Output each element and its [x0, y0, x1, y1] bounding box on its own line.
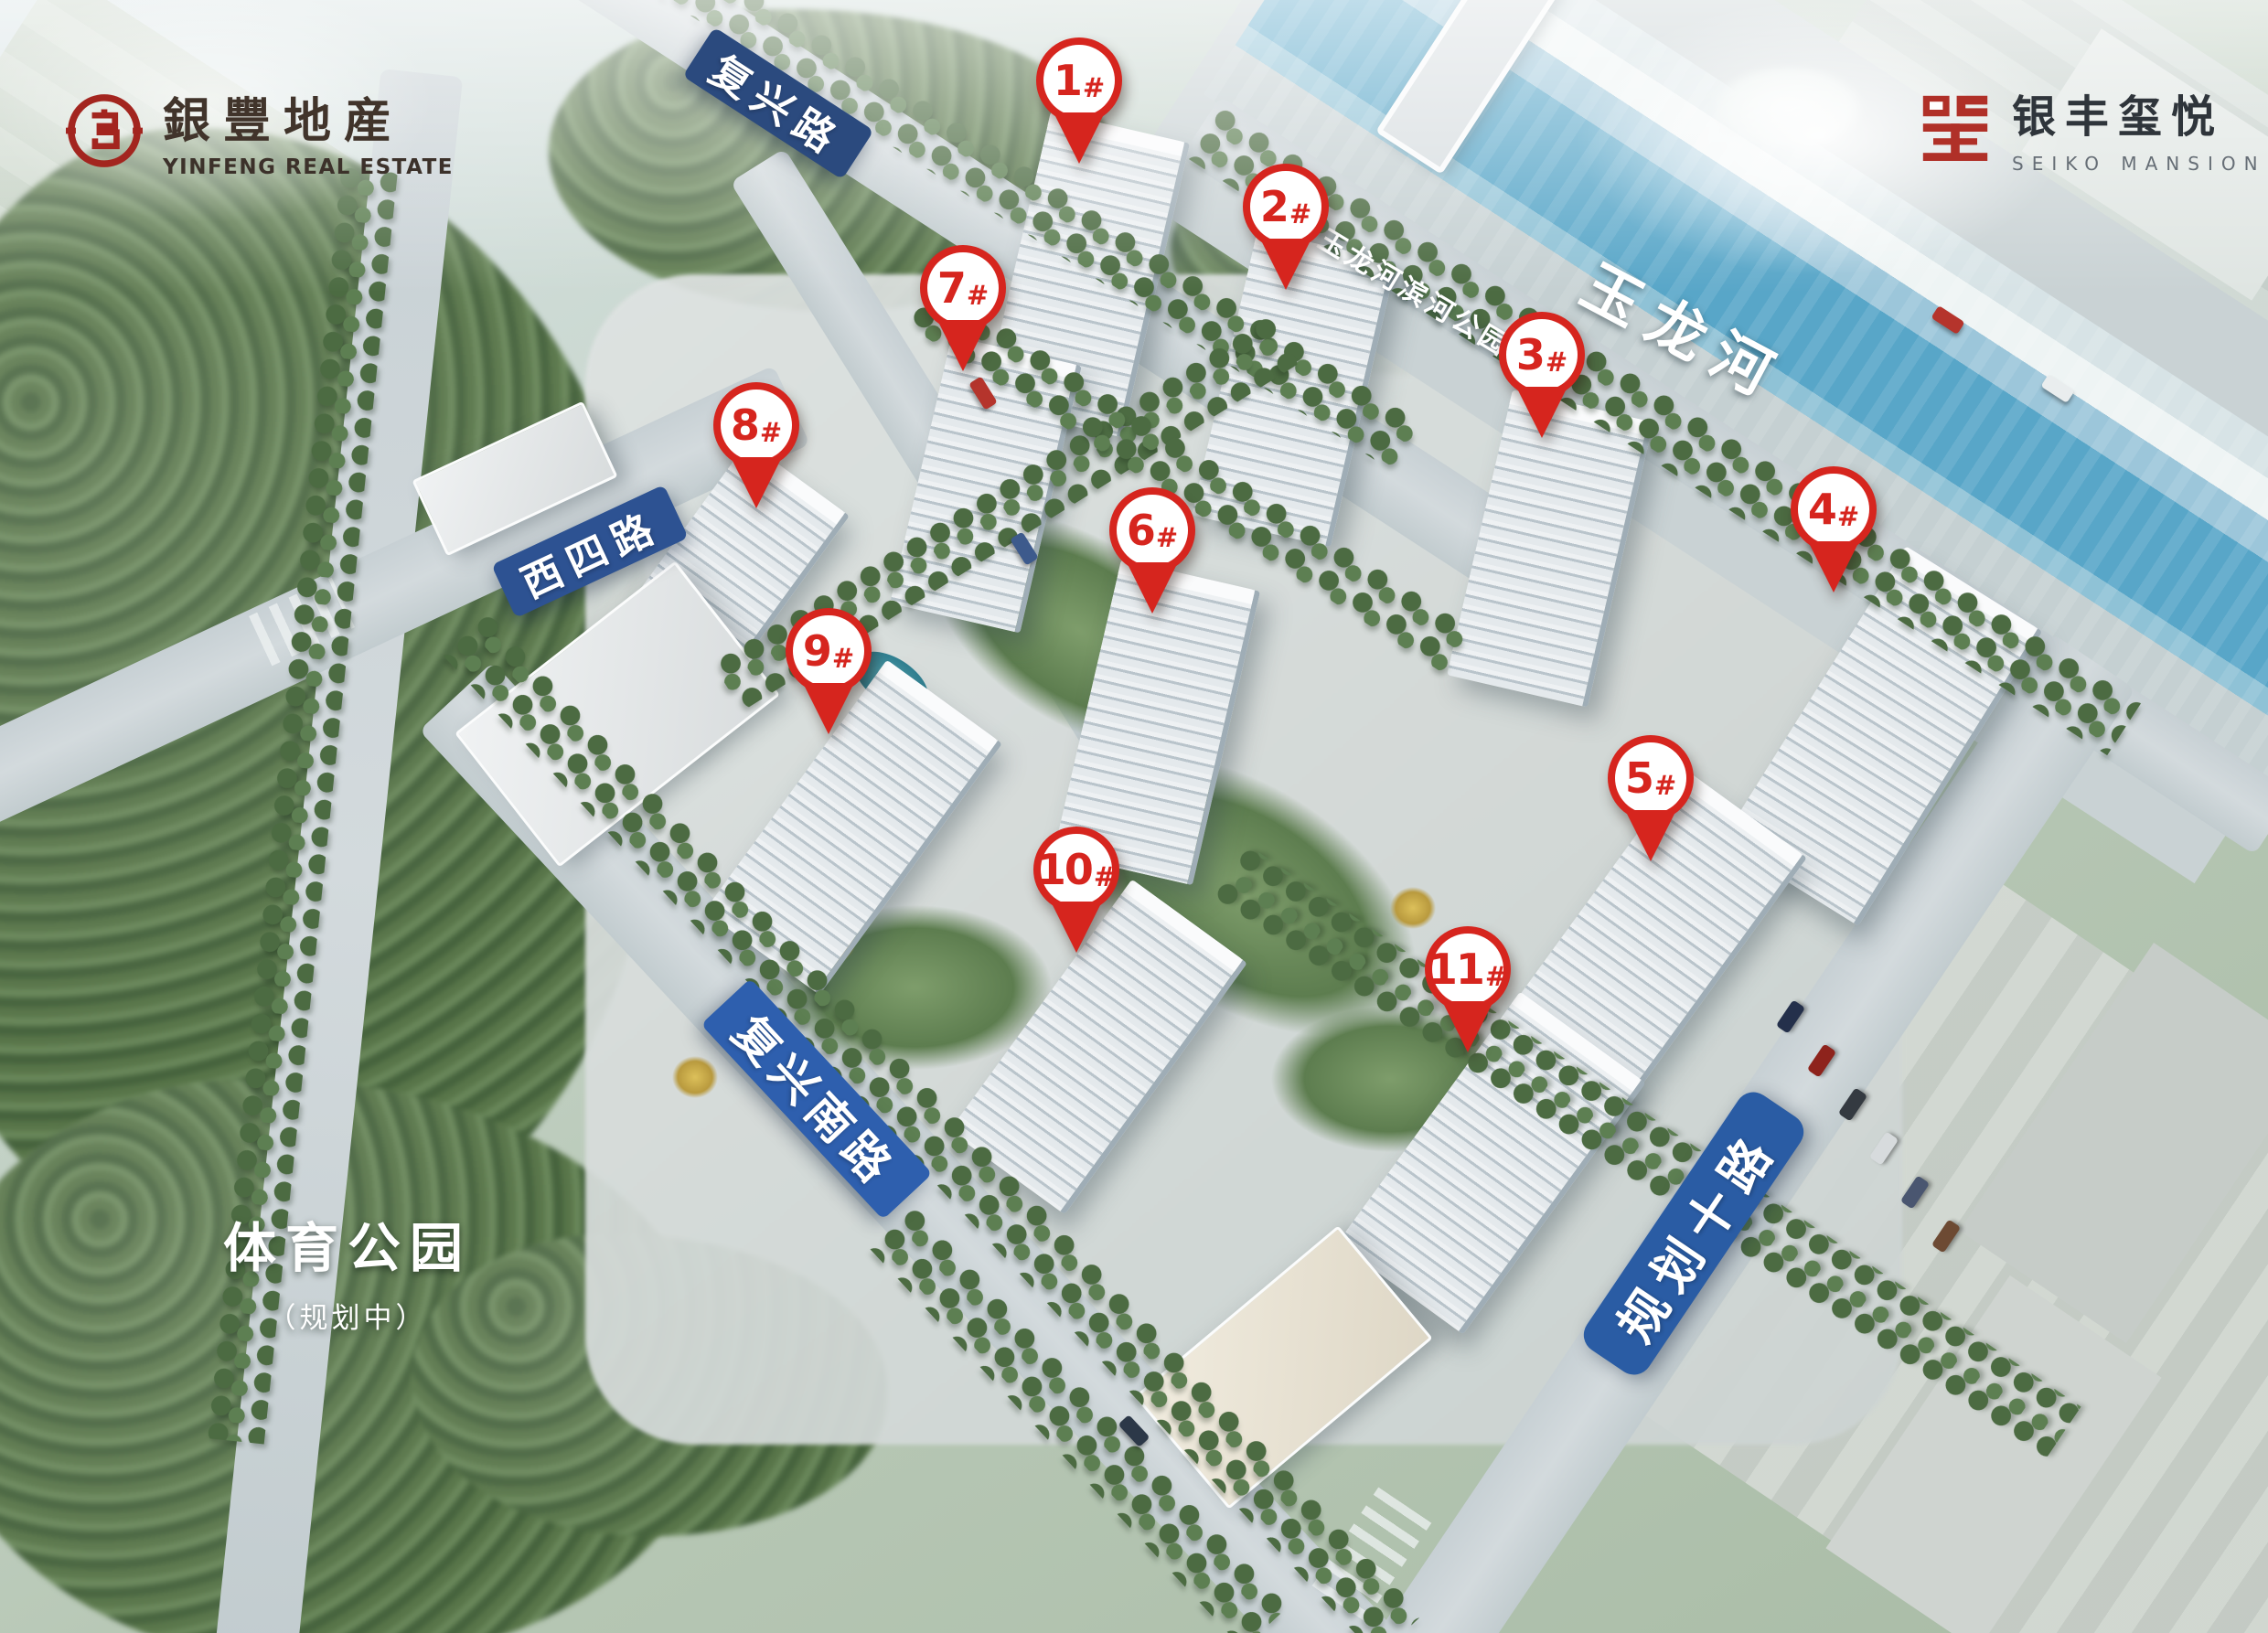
pin-number: 3 [1516, 330, 1544, 379]
pin-hash: # [1083, 72, 1105, 103]
pin-building-3[interactable]: 3# [1499, 312, 1585, 438]
autumn-tree-4 [1390, 887, 1436, 929]
pin-head: 3# [1499, 312, 1585, 398]
sports-park-label: 体育公园 （规划中） [165, 1205, 530, 1336]
pin-building-4[interactable]: 4# [1791, 466, 1877, 592]
seiko-mansion-subtitle: SEIKO MANSION [2012, 153, 2266, 175]
pin-head: 7# [920, 245, 1006, 331]
pin-tail [1260, 239, 1311, 290]
pin-hash: # [832, 643, 854, 674]
pin-head: 10# [1033, 827, 1119, 913]
pin-tail [1808, 541, 1859, 592]
pin-number: 4 [1808, 485, 1835, 534]
pin-tail [1442, 1001, 1493, 1052]
pin-number: 6 [1127, 506, 1154, 555]
park-pond [1710, 64, 1866, 151]
pin-head: 6# [1109, 487, 1195, 573]
autumn-tree-3 [672, 1056, 718, 1098]
pin-hash: # [1546, 347, 1567, 378]
pin-building-1[interactable]: 1# [1036, 37, 1122, 164]
pin-tail [803, 683, 854, 734]
pin-head: 1# [1036, 37, 1122, 123]
sports-park-note: （规划中） [165, 1295, 530, 1336]
pin-number: 2 [1260, 182, 1288, 231]
pin-tail [1516, 387, 1567, 438]
pin-number: 7 [937, 263, 965, 313]
pin-tail [937, 320, 989, 371]
pin-head: 5# [1608, 735, 1694, 821]
pin-building-7[interactable]: 7# [920, 245, 1006, 371]
pin-building-8[interactable]: 8# [713, 382, 799, 508]
pin-number: 9 [803, 626, 830, 676]
pin-number: 8 [731, 400, 758, 450]
pin-head: 8# [713, 382, 799, 468]
pin-number: 5 [1625, 753, 1653, 803]
pin-head: 2# [1243, 164, 1329, 250]
pin-building-6[interactable]: 6# [1109, 487, 1195, 614]
seiko-mansion-mark-icon [1919, 91, 1992, 165]
seiko-mansion-brand-logo: 银丰玺悦 SEIKO MANSION [1919, 80, 2266, 175]
pin-building-2[interactable]: 2# [1243, 164, 1329, 290]
pin-hash: # [1654, 770, 1676, 801]
pin-head: 9# [786, 608, 872, 694]
yinfeng-brand-logo: 銀豐地産 YINFENG REAL ESTATE [66, 82, 454, 179]
yinfeng-seal-icon [66, 92, 143, 169]
pin-hash: # [1837, 501, 1859, 532]
pin-building-5[interactable]: 5# [1608, 735, 1694, 861]
pin-tail [731, 457, 782, 508]
seiko-mansion-name: 银丰玺悦 [2012, 80, 2266, 144]
pin-hash: # [1094, 861, 1116, 892]
pin-tail [1054, 112, 1105, 164]
yinfeng-name: 銀豐地産 [163, 82, 454, 151]
pin-hash: # [760, 417, 782, 448]
pin-building-9[interactable]: 9# [786, 608, 872, 734]
pin-tail [1051, 902, 1102, 953]
pin-tail [1625, 810, 1676, 861]
pin-number: 1 [1054, 56, 1081, 105]
pin-number: 11 [1428, 945, 1483, 994]
pin-hash: # [1156, 522, 1178, 553]
pin-hash: # [1485, 961, 1507, 992]
pin-hash: # [1289, 198, 1311, 229]
pin-building-11[interactable]: 11# [1425, 926, 1511, 1052]
pin-head: 11# [1425, 926, 1511, 1012]
pin-building-10[interactable]: 10# [1033, 827, 1119, 953]
pin-hash: # [967, 280, 989, 311]
site-plan-rendering: 复兴路 西四路 复兴南路 规划十路 玉龙河 玉龙河滨河公园 体育公园 （规划中）… [0, 0, 2268, 1633]
yinfeng-subtitle: YINFENG REAL ESTATE [163, 155, 454, 179]
sports-park-title: 体育公园 [165, 1205, 530, 1282]
pin-number: 10 [1037, 845, 1092, 894]
pin-tail [1127, 562, 1178, 614]
pin-head: 4# [1791, 466, 1877, 552]
